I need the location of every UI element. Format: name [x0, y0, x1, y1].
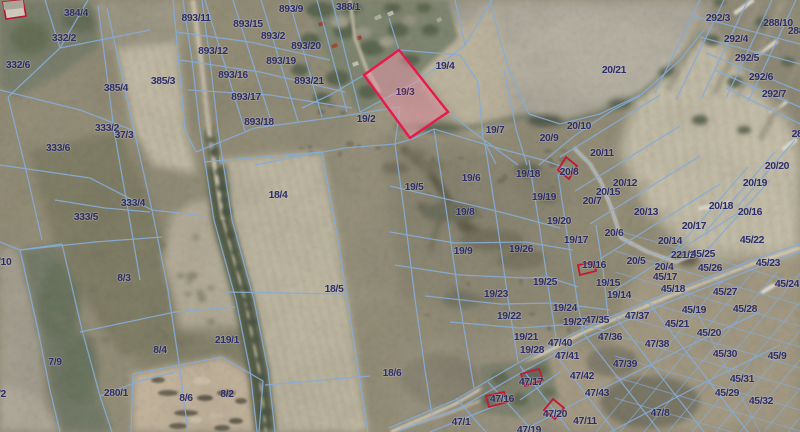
- svg-text:45/23: 45/23: [756, 258, 781, 269]
- svg-text:292/6: 292/6: [749, 72, 774, 83]
- svg-text:893/16: 893/16: [218, 70, 248, 81]
- svg-text:219/1: 219/1: [215, 335, 240, 346]
- svg-text:8/3: 8/3: [117, 273, 131, 284]
- svg-text:20/6: 20/6: [605, 228, 624, 239]
- svg-text:37/3: 37/3: [115, 130, 134, 141]
- svg-text:47/38: 47/38: [645, 339, 670, 350]
- svg-text:893/12: 893/12: [198, 46, 228, 57]
- svg-text:47/41: 47/41: [555, 351, 580, 362]
- svg-text:47/20: 47/20: [543, 409, 568, 420]
- svg-text:/2: /2: [0, 389, 7, 400]
- svg-text:45/19: 45/19: [682, 305, 707, 316]
- svg-text:19/28: 19/28: [520, 345, 545, 356]
- svg-text:333/6: 333/6: [46, 143, 71, 154]
- svg-text:893/18: 893/18: [244, 117, 274, 128]
- svg-text:19/16: 19/16: [582, 260, 607, 271]
- svg-text:893/19: 893/19: [266, 56, 296, 67]
- svg-text:20/13: 20/13: [634, 207, 659, 218]
- svg-text:333/5: 333/5: [74, 212, 99, 223]
- svg-text:19/7: 19/7: [486, 125, 505, 136]
- svg-text:45/24: 45/24: [775, 279, 800, 290]
- svg-text:20/21: 20/21: [602, 65, 627, 76]
- svg-text:19/9: 19/9: [454, 246, 473, 257]
- svg-text:8/2: 8/2: [220, 389, 234, 400]
- svg-text:47/42: 47/42: [570, 371, 595, 382]
- svg-text:292/4: 292/4: [724, 34, 749, 45]
- svg-text:292/5: 292/5: [735, 53, 760, 64]
- svg-text:19/17: 19/17: [564, 235, 589, 246]
- svg-text:19/21: 19/21: [514, 332, 539, 343]
- svg-text:45/30: 45/30: [713, 349, 738, 360]
- svg-text:47/1: 47/1: [452, 417, 471, 428]
- svg-text:47/16: 47/16: [490, 394, 515, 405]
- svg-text:893/15: 893/15: [233, 19, 263, 30]
- svg-text:20/14: 20/14: [658, 236, 683, 247]
- svg-text:47/19: 47/19: [517, 425, 542, 432]
- svg-text:19/15: 19/15: [596, 278, 621, 289]
- svg-text:45/31: 45/31: [730, 374, 755, 385]
- svg-text:19/19: 19/19: [532, 192, 557, 203]
- svg-text:47/39: 47/39: [613, 359, 638, 370]
- svg-text:893/2: 893/2: [261, 31, 286, 42]
- svg-text:19/22: 19/22: [497, 311, 522, 322]
- svg-text:20/10: 20/10: [567, 121, 592, 132]
- svg-text:45/20: 45/20: [697, 328, 722, 339]
- svg-text:893/11: 893/11: [181, 13, 211, 24]
- svg-text:19/23: 19/23: [484, 289, 509, 300]
- svg-text:47/40: 47/40: [548, 338, 573, 349]
- svg-text:332/6: 332/6: [6, 60, 31, 71]
- svg-text:292/3: 292/3: [706, 13, 731, 24]
- svg-text:47/11: 47/11: [573, 416, 597, 427]
- svg-text:19/18: 19/18: [516, 169, 541, 180]
- svg-text:893/17: 893/17: [231, 92, 261, 103]
- svg-text:47/43: 47/43: [585, 388, 610, 399]
- svg-text:47/8: 47/8: [651, 408, 670, 419]
- svg-text:47/35: 47/35: [585, 315, 610, 326]
- svg-text:20/8: 20/8: [560, 167, 579, 178]
- svg-text:8/6: 8/6: [179, 393, 193, 404]
- svg-text:45/28: 45/28: [733, 304, 758, 315]
- svg-text:45/17: 45/17: [653, 272, 678, 283]
- svg-text:45/32: 45/32: [749, 396, 774, 407]
- svg-text:20/18: 20/18: [709, 201, 734, 212]
- svg-text:292/7: 292/7: [762, 89, 787, 100]
- svg-text:47/36: 47/36: [598, 332, 623, 343]
- svg-text:7/10: 7/10: [0, 257, 12, 268]
- svg-text:18/5: 18/5: [325, 284, 344, 295]
- svg-text:45/29: 45/29: [715, 388, 740, 399]
- svg-text:45/18: 45/18: [661, 284, 686, 295]
- svg-text:288: 288: [788, 26, 800, 37]
- svg-text:384/4: 384/4: [64, 8, 89, 19]
- svg-text:47/17: 47/17: [519, 377, 544, 388]
- svg-text:20/7: 20/7: [583, 196, 602, 207]
- svg-text:18/6: 18/6: [383, 368, 402, 379]
- svg-text:19/5: 19/5: [405, 182, 424, 193]
- svg-text:19/14: 19/14: [607, 290, 632, 301]
- svg-text:893/9: 893/9: [279, 4, 304, 15]
- svg-text:20/5: 20/5: [627, 256, 646, 267]
- svg-text:333/4: 333/4: [121, 198, 146, 209]
- svg-text:385/3: 385/3: [151, 76, 176, 87]
- svg-text:19/8: 19/8: [456, 207, 475, 218]
- svg-text:19/3: 19/3: [396, 87, 415, 98]
- svg-text:893/20: 893/20: [291, 41, 321, 52]
- svg-text:8/4: 8/4: [153, 345, 167, 356]
- svg-text:893/21: 893/21: [294, 76, 324, 87]
- svg-text:385/4: 385/4: [104, 83, 129, 94]
- svg-text:19/2: 19/2: [357, 114, 376, 125]
- svg-text:45/26: 45/26: [698, 263, 723, 274]
- svg-text:45/21: 45/21: [665, 319, 690, 330]
- svg-text:20/16: 20/16: [738, 207, 763, 218]
- svg-text:20/20: 20/20: [765, 161, 790, 172]
- svg-text:47/37: 47/37: [625, 311, 650, 322]
- svg-text:19/25: 19/25: [533, 277, 558, 288]
- svg-text:20/17: 20/17: [682, 221, 707, 232]
- svg-text:45/22: 45/22: [740, 235, 765, 246]
- svg-text:19/4: 19/4: [436, 61, 455, 72]
- svg-text:18/4: 18/4: [269, 190, 288, 201]
- svg-text:45/9: 45/9: [768, 351, 787, 362]
- svg-text:7/9: 7/9: [48, 357, 62, 368]
- svg-text:388/1: 388/1: [336, 2, 361, 13]
- svg-text:20/9: 20/9: [540, 133, 559, 144]
- svg-text:20/11: 20/11: [590, 148, 614, 159]
- svg-text:28: 28: [792, 129, 800, 140]
- svg-text:20/19: 20/19: [743, 178, 768, 189]
- svg-text:45/27: 45/27: [713, 287, 738, 298]
- svg-text:19/6: 19/6: [462, 173, 481, 184]
- svg-text:19/20: 19/20: [547, 216, 572, 227]
- svg-text:19/24: 19/24: [553, 303, 578, 314]
- svg-text:19/26: 19/26: [509, 244, 534, 255]
- svg-text:45/25: 45/25: [691, 249, 716, 260]
- svg-text:280/1: 280/1: [104, 388, 129, 399]
- svg-text:332/2: 332/2: [52, 33, 77, 44]
